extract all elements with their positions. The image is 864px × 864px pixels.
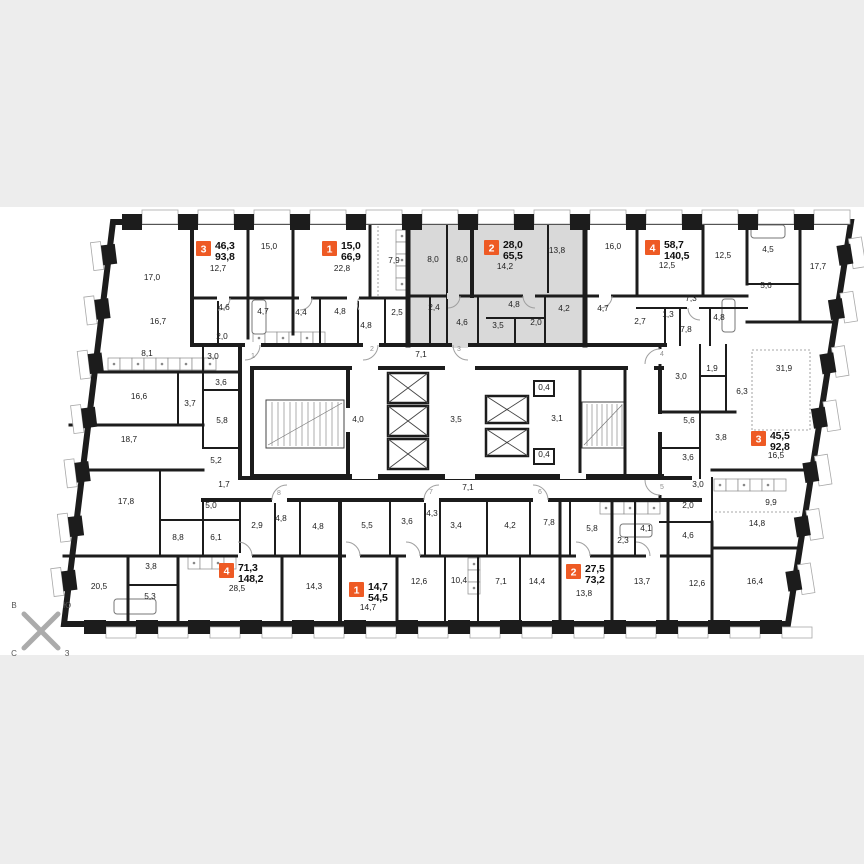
- entrance-number: 6: [538, 489, 542, 496]
- wall-pier: [402, 214, 422, 230]
- door-opening: [406, 553, 420, 559]
- room-area-label: 13,8: [549, 245, 566, 255]
- room-area-label: 12,7: [210, 263, 227, 273]
- wall-pier: [552, 620, 574, 634]
- wall-pier: [101, 244, 117, 266]
- room-area-label: 2,3: [617, 535, 629, 545]
- apartment-rooms-count: 2: [571, 567, 577, 579]
- wall-pier: [514, 214, 534, 230]
- room-area-label: 5,3: [144, 591, 156, 601]
- door-opening: [646, 553, 660, 559]
- kitchen-counter: [289, 332, 301, 344]
- room-area-label: 2,0: [682, 500, 694, 510]
- apartment-rooms-count: 1: [354, 585, 360, 597]
- room-area-label: 7,9: [388, 255, 400, 265]
- window-marker: [422, 210, 458, 224]
- compass-letter-east: В: [11, 601, 16, 610]
- window-marker: [210, 627, 240, 638]
- wall-pier: [178, 214, 198, 230]
- burner-icon: [209, 363, 212, 366]
- door-opening: [576, 553, 590, 559]
- door-opening: [447, 293, 459, 299]
- burner-icon: [401, 259, 404, 262]
- apartment-total-area: 65,5: [503, 250, 523, 262]
- door-opening: [352, 473, 378, 479]
- room-area-label: 4,8: [713, 312, 725, 322]
- door-opening: [346, 553, 360, 559]
- room-area-label: 16,0: [605, 241, 622, 251]
- window-marker: [702, 210, 738, 224]
- entrance-number: 7: [429, 489, 433, 496]
- compass-letter-south: Ю: [63, 601, 71, 610]
- burner-icon: [282, 337, 285, 340]
- room-area-label: 16,7: [150, 316, 167, 326]
- room-area-label: 4,3: [426, 508, 438, 518]
- burner-icon: [653, 507, 656, 510]
- wall-pier: [458, 214, 478, 230]
- kitchen-counter: [265, 332, 277, 344]
- burner-icon: [193, 562, 196, 565]
- burner-icon: [743, 484, 746, 487]
- wall-pier: [396, 620, 418, 634]
- room-area-label: 3,7: [184, 398, 196, 408]
- room-area-label: 14,2: [497, 261, 514, 271]
- apartment-total-area: 54,5: [368, 592, 388, 604]
- window-marker: [198, 210, 234, 224]
- burner-icon: [258, 337, 261, 340]
- room-area-label: 6,3: [736, 386, 748, 396]
- door-opening: [445, 473, 475, 479]
- apartment-rooms-count: 2: [489, 243, 495, 255]
- wall-pier: [604, 620, 626, 634]
- window-marker: [522, 627, 552, 638]
- window-marker: [590, 210, 626, 224]
- room-area-label: 1,3: [662, 309, 674, 319]
- burner-icon: [306, 337, 309, 340]
- compass-letter-north: С: [11, 649, 17, 658]
- room-area-label: 2,7: [634, 316, 646, 326]
- burner-icon: [401, 283, 404, 286]
- room-area-label: 12,5: [715, 250, 732, 260]
- burner-icon: [161, 363, 164, 366]
- background-band-bottom: [0, 655, 864, 864]
- room-area-label: 4,8: [360, 320, 372, 330]
- room-area-label: 7,3: [685, 293, 697, 303]
- room-area-label: 14,4: [529, 576, 546, 586]
- room-area-label: 2,0: [216, 331, 228, 341]
- room-area-label: 4,8: [334, 306, 346, 316]
- kitchen-counter: [612, 502, 624, 514]
- kitchen-counter: [774, 479, 786, 491]
- room-area-label: 8,0: [427, 254, 439, 264]
- room-area-label: 3,0: [675, 371, 687, 381]
- room-area-label: 3,0: [207, 351, 219, 361]
- wall-pier: [292, 620, 314, 634]
- room-area-label: 16,4: [747, 576, 764, 586]
- room-area-label: 14,8: [749, 518, 766, 528]
- room-area-label: 8,8: [172, 532, 184, 542]
- wall-pier: [61, 570, 77, 592]
- window-marker: [646, 210, 682, 224]
- room-area-label: 7,8: [543, 517, 555, 527]
- wall-pier: [794, 214, 814, 230]
- door-opening: [657, 414, 663, 432]
- entrance-number: 3: [457, 346, 461, 353]
- room-area-label: 3,5: [492, 320, 504, 330]
- window-marker: [366, 210, 402, 224]
- window-marker: [418, 627, 448, 638]
- wall-pier: [68, 515, 84, 537]
- door-opening: [424, 497, 439, 503]
- entrance-number: 5: [660, 484, 664, 491]
- door-opening: [238, 553, 252, 559]
- room-area-label: 3,5: [450, 414, 462, 424]
- window-marker: [470, 627, 500, 638]
- wall-pier: [760, 620, 782, 634]
- bathtub: [114, 599, 156, 614]
- room-area-label: 12,6: [689, 578, 706, 588]
- room-area-label: 16,6: [131, 391, 148, 401]
- room-area-label: 18,7: [121, 434, 138, 444]
- apartment-total-area: 66,9: [341, 251, 361, 263]
- room-area-label: 22,8: [334, 263, 351, 273]
- room-area-label: 2,4: [428, 302, 440, 312]
- apartment-total-area: 140,5: [664, 250, 690, 262]
- room-area-label: 4,2: [504, 520, 516, 530]
- room-area-label: 4,7: [597, 303, 609, 313]
- apartment-rooms-count: 3: [201, 244, 207, 256]
- room-area-label: 8,0: [456, 254, 468, 264]
- window-marker: [366, 627, 396, 638]
- apartment-rooms-count: 1: [327, 244, 333, 256]
- window-marker: [534, 210, 570, 224]
- room-area-label: 4,8: [312, 521, 324, 531]
- room-area-label: 2,5: [391, 307, 403, 317]
- entrance-number: 4: [660, 351, 664, 358]
- room-area-label: 7,1: [495, 576, 507, 586]
- wall-pier: [448, 620, 470, 634]
- door-opening: [687, 305, 699, 311]
- room-area-label: 3,8: [145, 561, 157, 571]
- wall-pier: [74, 461, 90, 483]
- wall-pier: [136, 620, 158, 634]
- room-area-label: 4,7: [257, 306, 269, 316]
- burner-icon: [473, 563, 476, 566]
- room-area-label: 17,7: [810, 261, 827, 271]
- wall-pier: [656, 620, 678, 634]
- apartment-total-area: 93,8: [215, 251, 235, 263]
- apartment-rooms-count: 3: [756, 434, 762, 446]
- burner-icon: [401, 235, 404, 238]
- apartment-rooms-count: 4: [224, 566, 230, 578]
- wall-pier: [122, 214, 142, 230]
- room-area-label: 17,8: [118, 496, 135, 506]
- window-marker: [254, 210, 290, 224]
- floor-plan-svg: 17,012,715,022,87,98,08,014,213,816,012,…: [0, 0, 864, 864]
- room-area-label: 13,8: [576, 588, 593, 598]
- door-opening: [628, 365, 654, 371]
- entrance-number: 1: [251, 353, 255, 360]
- door-opening: [445, 365, 475, 371]
- room-area-label: 3,8: [715, 432, 727, 442]
- room-area-label: 3,6: [215, 377, 227, 387]
- door-opening: [352, 365, 378, 371]
- wall-pier: [84, 620, 106, 634]
- room-area-label: 7,1: [415, 349, 427, 359]
- room-area-label: 5,6: [683, 415, 695, 425]
- room-area-label: 4,0: [352, 414, 364, 424]
- room-area-label: 13,7: [634, 576, 651, 586]
- wall-pier: [738, 214, 758, 230]
- kitchen-counter: [120, 358, 132, 370]
- window-marker: [314, 627, 344, 638]
- door-opening: [560, 473, 586, 479]
- room-area-label: 9,9: [765, 497, 777, 507]
- room-area-label: 4,6: [682, 530, 694, 540]
- burner-icon: [629, 507, 632, 510]
- room-area-label: 4,6: [456, 317, 468, 327]
- room-area-label: 4,5: [762, 244, 774, 254]
- door-opening: [299, 295, 311, 301]
- window-marker: [730, 627, 760, 638]
- burner-icon: [185, 363, 188, 366]
- room-area-label: 5,2: [210, 455, 222, 465]
- window-marker: [158, 627, 188, 638]
- window-marker: [574, 627, 604, 638]
- wall-pier: [290, 214, 310, 230]
- kitchen-counter: [750, 479, 762, 491]
- burner-icon: [767, 484, 770, 487]
- room-area-label: 3,6: [401, 516, 413, 526]
- room-area-label: 5,8: [586, 523, 598, 533]
- window-marker: [678, 627, 708, 638]
- room-area-label: 5,8: [216, 415, 228, 425]
- door-opening: [217, 295, 229, 301]
- window-marker: [310, 210, 346, 224]
- wall-pier: [570, 214, 590, 230]
- door-opening: [272, 497, 287, 503]
- room-area-label: 5,6: [760, 280, 772, 290]
- room-area-label: 7,1: [462, 482, 474, 492]
- wall-pier: [682, 214, 702, 230]
- window-marker: [782, 627, 812, 638]
- room-area-label: 4,6: [218, 302, 230, 312]
- background-band-top: [0, 0, 864, 207]
- burner-icon: [473, 587, 476, 590]
- room-area-label: 5,0: [205, 500, 217, 510]
- door-opening: [345, 408, 351, 432]
- burner-icon: [719, 484, 722, 487]
- room-area-label: 6,1: [210, 532, 222, 542]
- kitchen-counter: [636, 502, 648, 514]
- entrance-number: 8: [277, 490, 281, 497]
- room-area-label: 10,4: [451, 575, 468, 585]
- floor-plan-page: 17,012,715,022,87,98,08,014,213,816,012,…: [0, 0, 864, 864]
- room-area-label: 14,3: [306, 581, 323, 591]
- room-area-label: 7,8: [680, 324, 692, 334]
- apartment-total-area: 148,2: [238, 573, 264, 585]
- kitchen-counter: [168, 358, 180, 370]
- window-marker: [626, 627, 656, 638]
- room-area-label: 1,9: [706, 363, 718, 373]
- room-area-label: 3,4: [450, 520, 462, 530]
- burner-icon: [605, 507, 608, 510]
- burner-icon: [217, 562, 220, 565]
- room-area-label: 17,0: [144, 272, 161, 282]
- room-area-label: 5,5: [361, 520, 373, 530]
- apartment-rooms-count: 4: [650, 243, 656, 255]
- room-area-label: 3,6: [682, 452, 694, 462]
- window-marker: [758, 210, 794, 224]
- room-area-label: 0,4: [538, 382, 550, 392]
- wall-pier: [500, 620, 522, 634]
- wall-pier: [346, 214, 366, 230]
- door-opening: [347, 295, 359, 301]
- window-marker: [814, 210, 850, 224]
- wall-pier: [626, 214, 646, 230]
- apartment-total-area: 92,8: [770, 441, 790, 453]
- room-area-label: 4,8: [275, 513, 287, 523]
- room-area-label: 4,8: [508, 299, 520, 309]
- burner-icon: [113, 363, 116, 366]
- room-area-label: 12,6: [411, 576, 428, 586]
- window-marker: [262, 627, 292, 638]
- compass-letter-west: З: [65, 649, 70, 658]
- room-area-label: 2,9: [251, 520, 263, 530]
- kitchen-counter: [200, 557, 212, 569]
- room-area-label: 8,1: [141, 348, 153, 358]
- door-opening: [523, 293, 535, 299]
- wall-pier: [708, 620, 730, 634]
- window-marker: [478, 210, 514, 224]
- room-area-label: 31,9: [776, 363, 793, 373]
- room-area-label: 4,4: [295, 307, 307, 317]
- door-opening: [599, 293, 611, 299]
- room-area-label: 15,0: [261, 241, 278, 251]
- window-marker: [106, 627, 136, 638]
- kitchen-counter: [726, 479, 738, 491]
- burner-icon: [137, 363, 140, 366]
- room-area-label: 4,2: [558, 303, 570, 313]
- room-area-label: 1,7: [218, 479, 230, 489]
- room-area-label: 3,1: [551, 413, 563, 423]
- room-area-label: 4,1: [640, 523, 652, 533]
- door-opening: [533, 497, 548, 503]
- wall-pier: [344, 620, 366, 634]
- wall-pier: [188, 620, 210, 634]
- wall-pier: [88, 352, 104, 374]
- door-opening: [245, 342, 261, 348]
- entrance-number: 2: [370, 346, 374, 353]
- room-area-label: 2,0: [530, 317, 542, 327]
- room-area-label: 20,5: [91, 581, 108, 591]
- wall-pier: [81, 407, 97, 429]
- wall-pier: [94, 298, 110, 320]
- apartment-total-area: 73,2: [585, 574, 605, 586]
- window-marker: [142, 210, 178, 224]
- room-area-label: 0,4: [538, 449, 550, 459]
- wall-pier: [234, 214, 254, 230]
- kitchen-counter: [144, 358, 156, 370]
- room-area-label: 3,0: [692, 479, 704, 489]
- wall-pier: [240, 620, 262, 634]
